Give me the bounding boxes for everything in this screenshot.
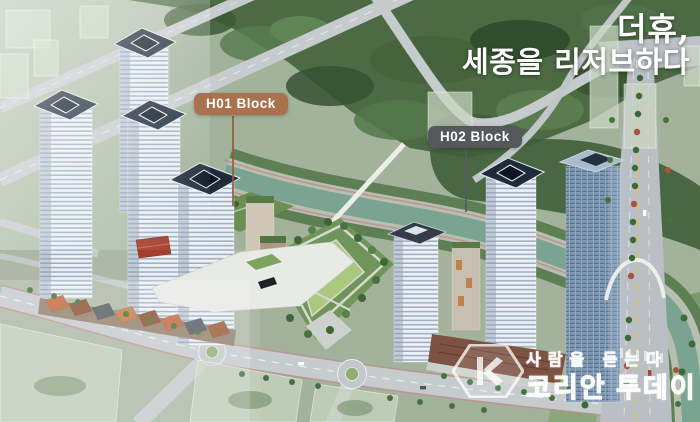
haze-overlay (0, 0, 210, 250)
watermark-name: 코리안 투데이 (526, 366, 697, 405)
page-title: 더휴, 세종을 리저브하다 (462, 12, 690, 78)
title-line-1: 더휴, (462, 12, 690, 47)
h01-leader-line (232, 116, 234, 206)
promo-image: 더휴, 세종을 리저브하다 H01 Block H02 Block 사람을 듣는… (0, 0, 700, 422)
haze-overlay (0, 280, 250, 422)
midrise (452, 242, 480, 330)
h01-block-label: H01 Block (194, 93, 288, 115)
hexagon-k-icon (452, 344, 524, 398)
title-line-2: 세종을 리저브하다 (462, 47, 690, 78)
h02-block-label: H02 Block (428, 126, 522, 148)
h02-leader-line (465, 149, 467, 212)
watermark: 사람을 듣는다 코리안 투데이 (452, 340, 700, 404)
